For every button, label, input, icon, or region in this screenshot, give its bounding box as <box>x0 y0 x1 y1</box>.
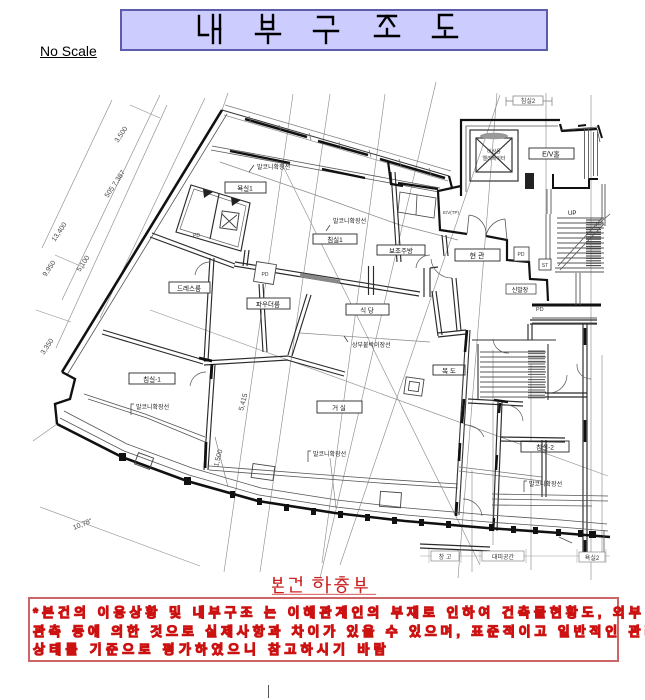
svg-text:발코니확장선: 발코니확장선 <box>257 163 290 171</box>
svg-text:침실2: 침실2 <box>521 97 536 105</box>
svg-text:보조주방: 보조주방 <box>389 246 413 255</box>
svg-text:거 실: 거 실 <box>332 403 346 412</box>
svg-text:9,950: 9,950 <box>42 260 58 279</box>
svg-text:PD: PD <box>536 307 544 313</box>
svg-text:드레스룸: 드레스룸 <box>177 284 201 293</box>
svg-text:505 7,387: 505 7,387 <box>104 169 127 199</box>
svg-text:PD: PD <box>262 272 269 278</box>
svg-text:창 고: 창 고 <box>439 553 452 561</box>
svg-text:파우더룸: 파우더룸 <box>256 300 280 309</box>
svg-text:현 관: 현 관 <box>470 251 485 260</box>
svg-text:PD: PD <box>518 252 525 258</box>
svg-text:5,100: 5,100 <box>76 255 92 274</box>
svg-text:침실1: 침실1 <box>327 235 343 244</box>
svg-text:욕실1: 욕실1 <box>237 184 253 193</box>
svg-text:PD: PD <box>193 233 200 239</box>
svg-text:엘리베이터: 엘리베이터 <box>482 155 505 162</box>
svg-text:발코니확장선: 발코니확장선 <box>313 450 346 458</box>
svg-text:3,350: 3,350 <box>40 338 56 357</box>
svg-text:UP: UP <box>568 211 576 217</box>
svg-text:욕실2: 욕실2 <box>585 554 600 562</box>
svg-text:발코니확장선: 발코니확장선 <box>136 403 169 411</box>
svg-text:대피공간: 대피공간 <box>492 553 515 561</box>
svg-text:13,400: 13,400 <box>51 221 69 243</box>
svg-text:침실-1: 침실-1 <box>143 375 161 384</box>
svg-text:신발장: 신발장 <box>512 286 529 294</box>
svg-text:비상용: 비상용 <box>487 148 501 155</box>
svg-text:상부붙박이장선: 상부붙박이장선 <box>352 341 391 349</box>
svg-text:발코니확장선: 발코니확장선 <box>333 217 366 225</box>
svg-text:복 도: 복 도 <box>442 367 456 375</box>
svg-text:E/V(TP): E/V(TP) <box>443 210 460 215</box>
svg-text:E/V홀: E/V홀 <box>542 150 560 159</box>
svg-text:식 당: 식 당 <box>360 306 374 315</box>
svg-text:3,500: 3,500 <box>114 126 130 145</box>
svg-text:ST: ST <box>542 263 548 269</box>
svg-text:침실-2: 침실-2 <box>536 443 554 452</box>
